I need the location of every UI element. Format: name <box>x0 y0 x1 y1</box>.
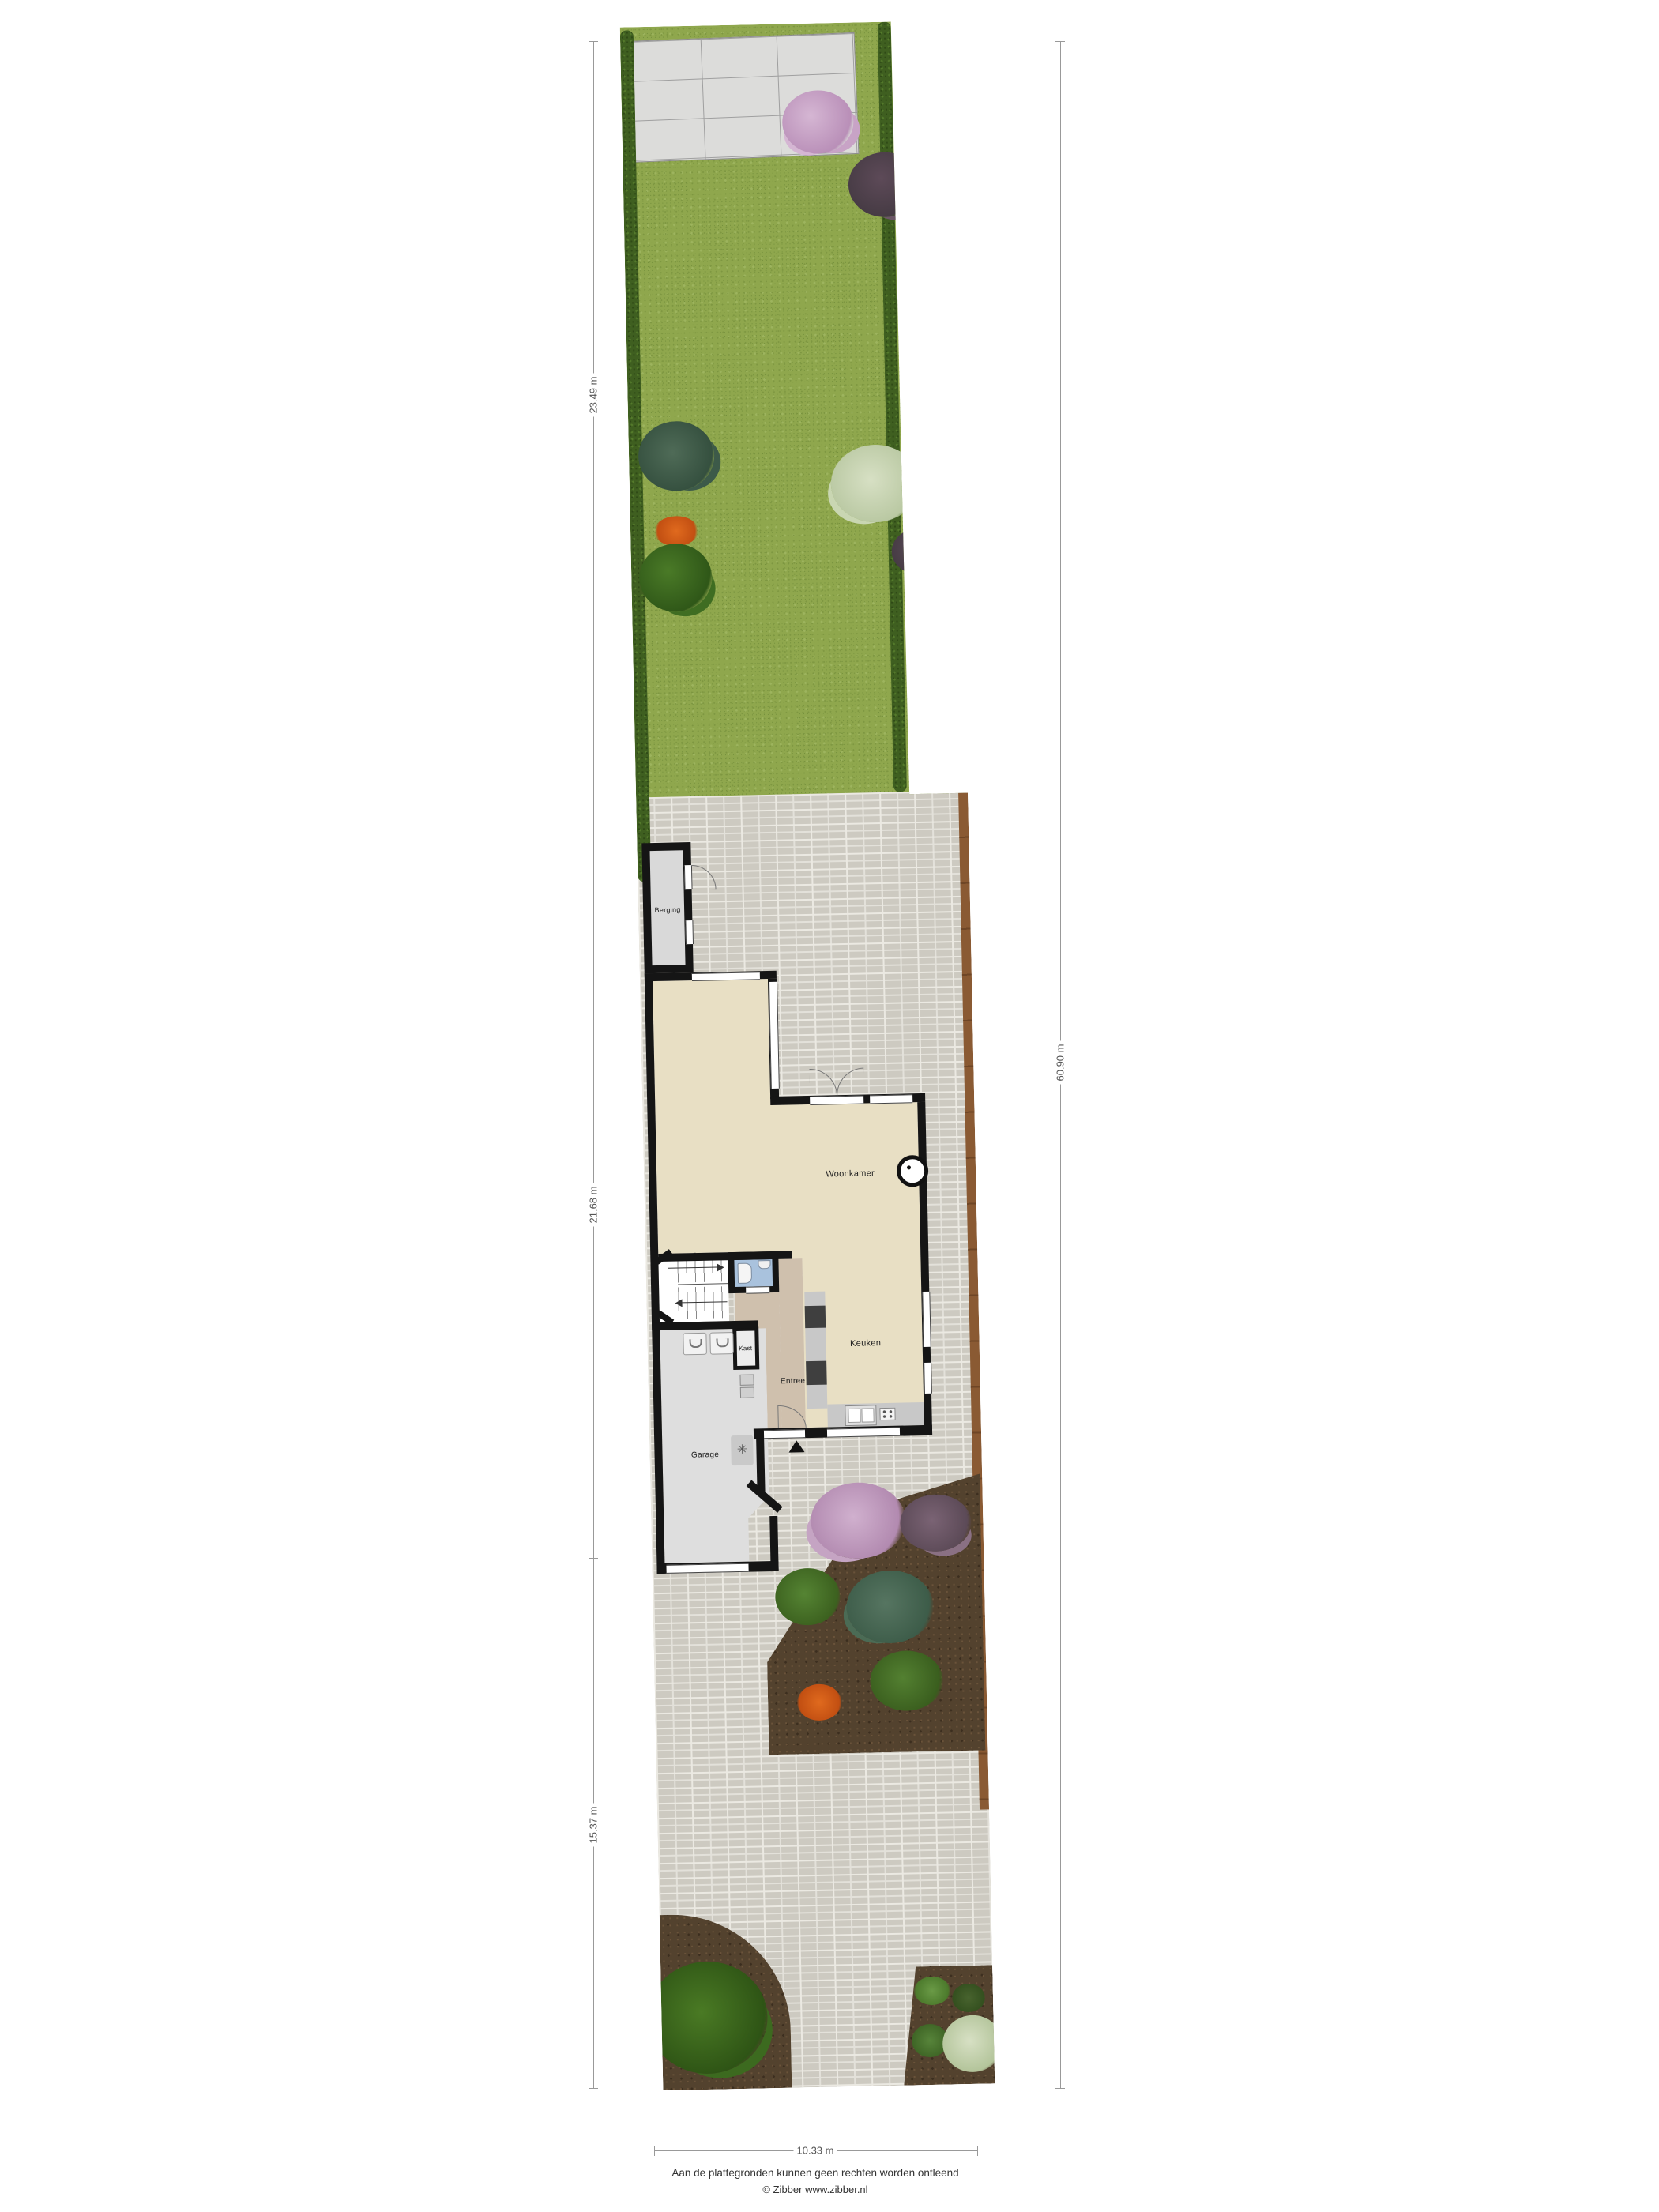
dim-tick <box>977 2146 978 2156</box>
toilet-icon <box>737 1263 752 1284</box>
footer-disclaimer: Aan de plattegronden kunnen geen rechten… <box>483 2165 1147 2182</box>
dim-tick <box>589 2088 598 2089</box>
room-label-keuken: Keuken <box>850 1338 881 1349</box>
meter-cupboard-icon-1 <box>739 1375 754 1386</box>
toilet-door-opening <box>746 1286 769 1294</box>
dim-label-total: 60.90 m <box>1054 1041 1067 1085</box>
window-jog <box>870 1094 912 1104</box>
window-north-living <box>692 972 760 981</box>
room-label-kast: Kast <box>739 1345 752 1352</box>
dim-label-width: 10.33 m <box>794 2144 837 2157</box>
room-label-entree: Entree <box>781 1377 805 1386</box>
toilet-sink-icon <box>758 1260 770 1269</box>
berging-window <box>685 920 694 944</box>
front-door-opening <box>764 1429 805 1439</box>
footer-copyright: © Zibber www.zibber.nl <box>483 2182 1147 2199</box>
window-east-kitchen-1 <box>922 1292 931 1347</box>
bush-dark-purple <box>848 152 922 218</box>
footer: Aan de plattegronden kunnen geen rechten… <box>483 2165 1147 2198</box>
room-label-garage: Garage <box>691 1450 719 1460</box>
staircase <box>658 1252 729 1322</box>
kitchen-appliance-2 <box>806 1361 827 1386</box>
dim-label-garden: 23.49 m <box>587 374 600 417</box>
entree-floor <box>778 1258 805 1428</box>
room-label-woonkamer: Woonkamer <box>826 1168 875 1179</box>
washer-icon-2 <box>709 1332 734 1355</box>
stairs-down-arrow-icon <box>675 1299 682 1307</box>
bush-purple-right <box>891 526 955 577</box>
window-east-kitchen-2 <box>924 1363 932 1394</box>
kitchen-appliance-1 <box>805 1306 826 1329</box>
ventilation-unit-icon: ✳ <box>731 1435 754 1466</box>
entrance-arrow-icon <box>788 1440 804 1452</box>
blossom-tree-white <box>830 444 920 523</box>
plot-site-plan: Berging Kast ✳ <box>620 21 995 2090</box>
dim-tick <box>654 2146 655 2156</box>
window-south-kitchen <box>827 1428 900 1438</box>
dim-label-house: 21.68 m <box>587 1183 600 1227</box>
stovetop-icon <box>879 1408 895 1420</box>
meter-cupboard-icon-2 <box>740 1387 754 1398</box>
garage-door-opening <box>666 1563 748 1574</box>
dim-label-front: 15.37 m <box>587 1804 600 1847</box>
room-label-berging: Berging <box>654 905 680 914</box>
dim-tick <box>1055 2088 1065 2089</box>
stairs-up-arrow-icon <box>717 1263 724 1271</box>
kitchen-sink-icon <box>845 1405 877 1426</box>
dim-tick <box>1055 41 1065 42</box>
dim-line-garden <box>593 41 594 829</box>
dim-tick <box>589 41 598 42</box>
french-door-opening <box>810 1096 863 1105</box>
washer-icon-1 <box>683 1333 707 1356</box>
